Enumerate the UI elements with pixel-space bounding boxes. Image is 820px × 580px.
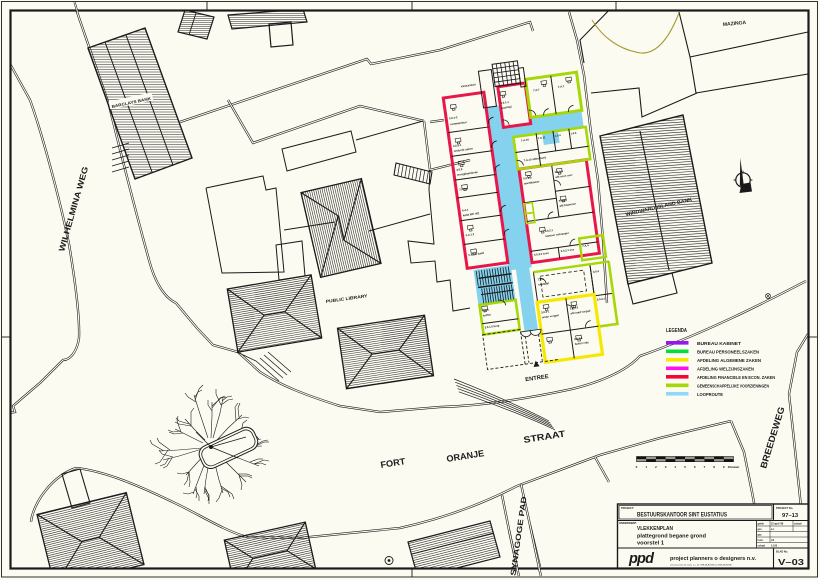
svg-text:BLAD No.: BLAD No. [776,550,788,554]
svg-text:gez.: gez. [758,534,763,537]
svg-text:ppd: ppd [628,551,655,567]
svg-text:10meter: 10meter [728,465,741,469]
svg-text:BESTUURSKANTOOR SINT EUSTATI: BESTUURSKANTOOR SINT EUSTATIUS [637,513,727,519]
svg-text:PROJECT No.: PROJECT No. [776,506,793,510]
svg-text:schaal: schaal [758,545,766,548]
svg-text:schaal: schaal [794,523,802,526]
svg-text:5: 5 [684,465,686,469]
svg-text:LEGENDA: LEGENDA [666,328,687,334]
svg-text:a.l.: a.l. [771,528,775,531]
svg-text:2: 2 [655,465,657,469]
svg-text:4: 4 [674,465,676,469]
svg-text:V–03: V–03 [778,557,804,567]
svg-text:VLEKKENPLAN: VLEKKENPLAN [637,526,673,532]
svg-text:xxxxxxxxxxxx 52 xxxxx x.x.: xxxxxxxxxxxx 52 xxxxx x.x. tel. 599-38-8… [670,564,733,567]
svg-text:ONDERWERP:: ONDERWERP: [619,521,637,525]
svg-text:AFDELING FINANCIELE EN ECON: AFDELING FINANCIELE EN ECON. ZAKEN [697,375,775,380]
svg-text:gec.: gec. [758,528,763,531]
svg-text:getek.: getek. [758,523,765,526]
svg-text:project planners o designer: project planners o designers n.v. [670,556,757,562]
svg-text:GEMEENSCHAPPELIJKE VOORZIENIN: GEMEENSCHAPPELIJKE VOORZIENINGEN [697,383,769,388]
svg-text:AFDELING ALGEMENE ZAKEN: AFDELING ALGEMENE ZAKEN [697,358,761,363]
svg-text:form.: form. [758,539,764,542]
svg-text:1:150: 1:150 [771,545,778,548]
svg-text:LOOPROUTE: LOOPROUTE [697,392,723,397]
svg-text:plattegrond begane grond: plattegrond begane grond [637,534,706,540]
svg-text:AFDELING WELZIJNSZAKEN: AFDELING WELZIJNSZAKEN [697,366,754,371]
svg-text:1: 1 [645,465,647,469]
svg-text:BUREAU PERSONEELSZAKEN: BUREAU PERSONEELSZAKEN [697,349,759,354]
svg-text:22 april '98: 22 april '98 [771,523,784,526]
svg-text:7: 7 [704,465,706,469]
svg-text:8: 8 [713,465,715,469]
svg-text:BUREAU KABINET: BUREAU KABINET [697,341,741,346]
svg-text:9: 9 [723,465,725,469]
svg-text:97–13: 97–13 [782,513,799,519]
svg-text:3: 3 [665,465,667,469]
svg-text:0: 0 [636,465,638,469]
svg-text:voorstel 1: voorstel 1 [637,541,664,547]
svg-text:6: 6 [694,465,696,469]
svg-text:PROJECT:: PROJECT: [621,506,634,510]
